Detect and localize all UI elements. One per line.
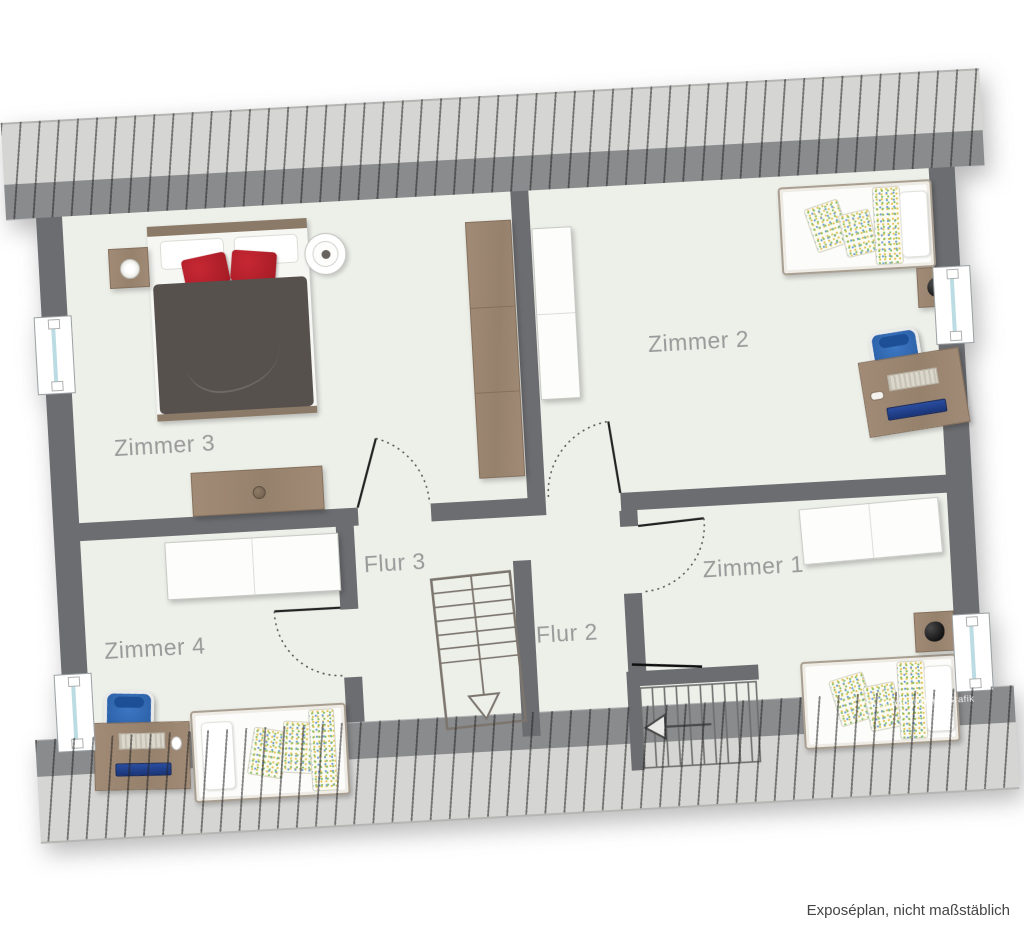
window-knob	[68, 676, 81, 687]
desk	[94, 721, 191, 791]
wall-flur2-zimmer1-stub	[619, 510, 638, 527]
floor-plan: Zimmer 3 Zimmer 2 Flur 3 Flur 2 Zimmer 4…	[1, 68, 1020, 842]
nightstand	[913, 610, 955, 652]
window-left-upper	[34, 315, 76, 395]
single-bed	[190, 703, 351, 804]
window-right-upper	[932, 265, 974, 345]
room-label-zimmer3: Zimmer 3	[113, 429, 215, 462]
wall-zimmer4-flur3-lower	[344, 677, 364, 723]
window-glass	[950, 275, 957, 335]
room-label-zimmer1: Zimmer 1	[702, 551, 804, 584]
window-glass	[969, 622, 976, 682]
single-bed	[777, 179, 936, 275]
room-label-zimmer2: Zimmer 2	[647, 325, 749, 358]
pillow	[899, 190, 931, 257]
room-label-flur2: Flur 2	[535, 618, 598, 648]
double-bed	[147, 218, 318, 422]
window-right-lower	[952, 612, 994, 692]
wardrobe-divider	[475, 390, 519, 393]
plan-caption: Exposéplan, nicht maßstäblich	[807, 902, 1010, 919]
room-label-zimmer4: Zimmer 4	[104, 632, 206, 665]
window-glass	[51, 325, 58, 385]
desk-handle	[870, 390, 885, 401]
window-knob	[946, 269, 959, 280]
monitor-icon	[886, 398, 947, 420]
sideboard	[190, 465, 324, 516]
window-knob	[71, 738, 84, 749]
floor-plan-page: Zimmer 3 Zimmer 2 Flur 3 Flur 2 Zimmer 4…	[0, 0, 1024, 931]
monitor-icon	[115, 762, 171, 776]
nightstand	[108, 247, 150, 289]
floral-blanket	[308, 708, 339, 791]
mouse-icon	[171, 736, 182, 750]
window-knob	[969, 678, 982, 689]
window-left-lower	[54, 673, 96, 753]
room-label-flur3: Flur 3	[363, 548, 426, 578]
window-glass	[71, 683, 78, 743]
window-knob	[51, 381, 64, 392]
desk	[858, 347, 971, 438]
keyboard-icon	[887, 367, 939, 391]
wardrobe-divider	[471, 306, 515, 309]
window-knob	[48, 319, 61, 330]
table-lamp-icon	[119, 258, 140, 279]
table-lamp-icon	[924, 621, 945, 642]
window-knob	[966, 616, 979, 627]
bed-duvet	[153, 276, 314, 414]
pillow	[200, 721, 236, 791]
keyboard-icon	[119, 733, 165, 750]
white-dresser	[164, 533, 341, 601]
window-knob	[950, 331, 963, 342]
